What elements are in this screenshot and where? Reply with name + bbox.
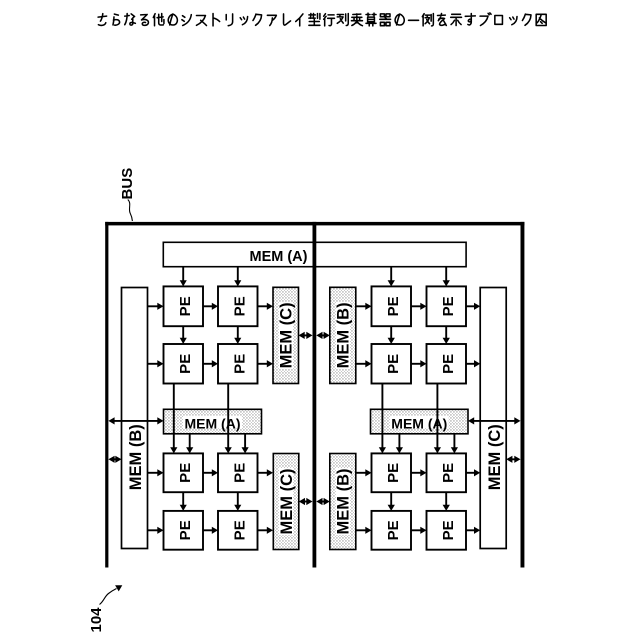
svg-text:PE: PE (177, 463, 194, 483)
svg-text:PE: PE (440, 296, 457, 316)
svg-text:PE: PE (177, 520, 194, 540)
svg-text:PE: PE (232, 520, 249, 540)
svg-text:MEM (A): MEM (A) (391, 415, 447, 431)
svg-text:PE: PE (232, 354, 249, 374)
svg-text:MEM (C): MEM (C) (278, 302, 296, 368)
svg-text:PE: PE (177, 296, 194, 316)
svg-text:PE: PE (385, 463, 402, 483)
svg-text:MEM (A): MEM (A) (250, 249, 308, 265)
svg-text:PE: PE (440, 520, 457, 540)
svg-text:MEM (B): MEM (B) (127, 424, 145, 490)
svg-text:MEM (B): MEM (B) (335, 302, 353, 368)
svg-text:MEM (C): MEM (C) (278, 469, 296, 535)
svg-text:MEM (C): MEM (C) (486, 424, 504, 490)
svg-text:PE: PE (440, 354, 457, 374)
svg-text:PE: PE (440, 463, 457, 483)
svg-text:PE: PE (385, 520, 402, 540)
svg-text:PE: PE (385, 354, 402, 374)
svg-text:PE: PE (177, 354, 194, 374)
svg-text:PE: PE (385, 296, 402, 316)
svg-text:MEM (A): MEM (A) (185, 415, 241, 431)
svg-text:104: 104 (88, 607, 105, 633)
svg-text:BUS: BUS (119, 168, 136, 200)
svg-text:MEM (B): MEM (B) (335, 469, 353, 535)
svg-text:PE: PE (232, 463, 249, 483)
svg-text:PE: PE (232, 296, 249, 316)
